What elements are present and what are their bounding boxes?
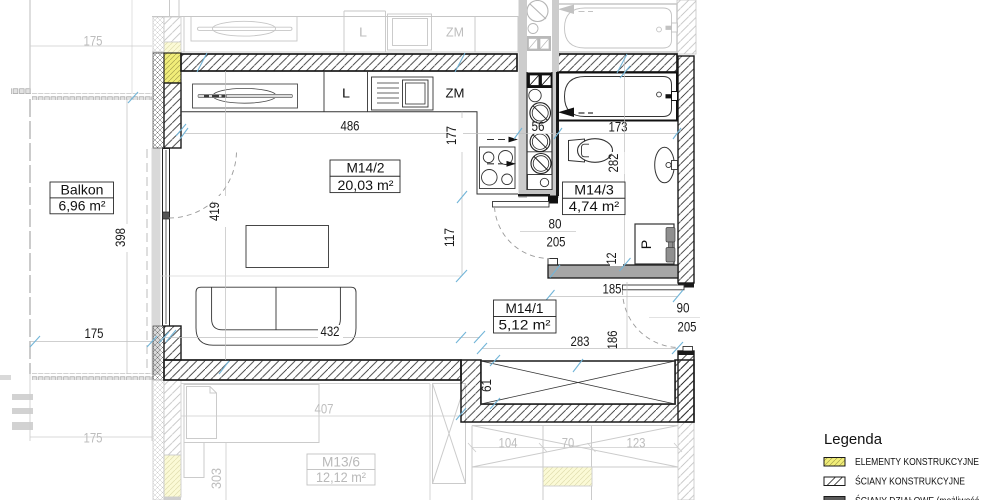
svg-text:ŚCIANY DZIAŁOWE (możliwość: ŚCIANY DZIAŁOWE (możliwość — [855, 494, 979, 500]
svg-text:486: 486 — [341, 118, 360, 134]
svg-text:175: 175 — [84, 33, 103, 49]
svg-text:205: 205 — [678, 319, 697, 335]
svg-text:177: 177 — [443, 126, 459, 145]
svg-text:56: 56 — [532, 118, 545, 134]
svg-text:M14/3: M14/3 — [574, 181, 614, 197]
svg-text:M14/2: M14/2 — [347, 159, 385, 175]
svg-text:L: L — [359, 25, 367, 40]
svg-text:419: 419 — [206, 202, 222, 221]
svg-text:12: 12 — [603, 252, 619, 264]
svg-text:L: L — [342, 86, 350, 101]
svg-text:Balkon: Balkon — [61, 181, 104, 197]
svg-text:432: 432 — [321, 323, 340, 339]
svg-text:70: 70 — [562, 435, 575, 451]
svg-text:90: 90 — [677, 300, 690, 316]
svg-text:ZM: ZM — [446, 86, 465, 101]
svg-text:175: 175 — [84, 430, 103, 446]
svg-text:185: 185 — [603, 281, 622, 297]
svg-text:398: 398 — [112, 228, 128, 247]
svg-text:ZM: ZM — [446, 25, 464, 40]
svg-text:186: 186 — [604, 330, 620, 349]
svg-text:303: 303 — [208, 468, 224, 489]
svg-text:M14/1: M14/1 — [506, 300, 544, 316]
svg-text:ELEMENTY KONSTRUKCYJNE: ELEMENTY KONSTRUKCYJNE — [855, 456, 979, 468]
svg-text:Legenda: Legenda — [824, 432, 883, 448]
svg-text:117: 117 — [441, 228, 457, 247]
svg-text:283: 283 — [571, 333, 590, 349]
svg-text:123: 123 — [627, 435, 646, 451]
svg-text:20,03 m²: 20,03 m² — [338, 177, 394, 193]
svg-text:61: 61 — [478, 379, 494, 392]
svg-text:282: 282 — [605, 153, 621, 172]
svg-text:4,74 m²: 4,74 m² — [569, 198, 620, 214]
svg-text:ŚCIANY KONSTRUKCYJNE: ŚCIANY KONSTRUKCYJNE — [855, 475, 965, 488]
svg-text:205: 205 — [547, 234, 566, 250]
svg-text:P: P — [639, 240, 654, 250]
svg-text:12,12 m²: 12,12 m² — [316, 470, 366, 485]
svg-text:175: 175 — [85, 325, 104, 341]
svg-text:104: 104 — [499, 435, 518, 451]
svg-text:80: 80 — [549, 216, 562, 232]
svg-text:6,96 m²: 6,96 m² — [59, 198, 106, 214]
svg-text:M13/6: M13/6 — [322, 455, 360, 470]
svg-text:407: 407 — [315, 401, 334, 417]
svg-text:5,12 m²: 5,12 m² — [499, 317, 551, 333]
